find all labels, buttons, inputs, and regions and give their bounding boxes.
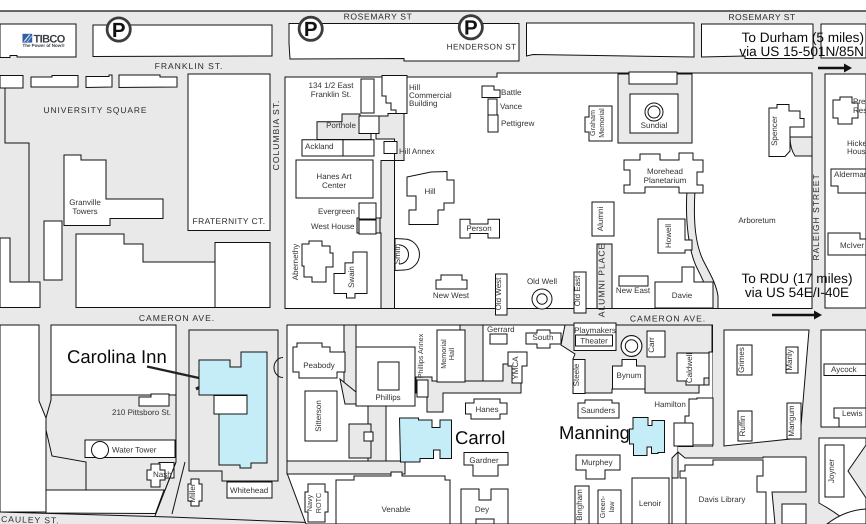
svg-text:West House: West House xyxy=(311,222,355,231)
svg-text:Phillips: Phillips xyxy=(375,393,400,402)
svg-text:Memorial: Memorial xyxy=(597,108,606,138)
svg-text:Planetarium: Planetarium xyxy=(644,176,687,185)
svg-text:To Durham (5 miles): To Durham (5 miles) xyxy=(742,30,864,45)
svg-text:Hill Annex: Hill Annex xyxy=(399,147,435,156)
svg-text:Smith: Smith xyxy=(393,244,402,264)
svg-text:Bynum: Bynum xyxy=(617,371,642,380)
svg-text:FRANKLIN ST.: FRANKLIN ST. xyxy=(155,61,224,71)
svg-text:Aycock: Aycock xyxy=(831,365,858,374)
svg-text:Hall: Hall xyxy=(447,347,456,360)
svg-text:P: P xyxy=(464,17,478,40)
svg-text:Alderman: Alderman xyxy=(834,170,866,179)
svg-text:Howell: Howell xyxy=(664,224,673,248)
svg-text:Building: Building xyxy=(409,99,437,108)
svg-text:Center: Center xyxy=(322,181,346,190)
svg-text:Swain: Swain xyxy=(347,266,356,288)
svg-text:CAMERON AVE.: CAMERON AVE. xyxy=(630,314,706,324)
svg-text:210 Pittsboro St.: 210 Pittsboro St. xyxy=(112,408,171,417)
svg-text:Nash: Nash xyxy=(153,470,172,479)
svg-text:ROSEMARY ST: ROSEMARY ST xyxy=(728,12,795,22)
svg-text:Whitehead: Whitehead xyxy=(230,486,268,495)
svg-text:Pres.: Pres. xyxy=(853,97,866,106)
svg-text:Gerrard: Gerrard xyxy=(487,325,515,334)
svg-text:Granville: Granville xyxy=(69,198,101,207)
svg-text:McIver: McIver xyxy=(840,241,864,250)
svg-text:South: South xyxy=(533,333,554,342)
svg-text:Hanes: Hanes xyxy=(475,405,498,414)
svg-text:Murphey: Murphey xyxy=(581,458,612,467)
svg-text:Res.: Res. xyxy=(853,106,866,115)
svg-text:To RDU (17 miles): To RDU (17 miles) xyxy=(741,271,852,286)
svg-text:UNIVERSITY SQUARE: UNIVERSITY SQUARE xyxy=(44,105,148,115)
svg-text:law: law xyxy=(607,501,616,513)
svg-text:P: P xyxy=(112,19,126,42)
svg-text:Evergreen: Evergreen xyxy=(318,207,355,216)
svg-text:Old Well: Old Well xyxy=(527,277,557,286)
svg-text:HENDERSON ST: HENDERSON ST xyxy=(447,42,517,51)
svg-text:Ruffin: Ruffin xyxy=(738,416,747,437)
svg-text:Arboretum: Arboretum xyxy=(738,216,776,225)
svg-text:Bingham: Bingham xyxy=(575,489,584,521)
svg-text:CAMERON AVE.: CAMERON AVE. xyxy=(139,313,215,323)
svg-text:ROTC: ROTC xyxy=(314,493,323,513)
svg-text:Grimes: Grimes xyxy=(737,347,746,373)
svg-text:New West: New West xyxy=(433,291,470,300)
svg-text:134 1/2 East: 134 1/2 East xyxy=(309,81,355,90)
svg-text:RALEIGH STREET: RALEIGH STREET xyxy=(811,173,821,260)
svg-text:Water Tower: Water Tower xyxy=(112,446,157,455)
svg-text:Phillips Annex: Phillips Annex xyxy=(416,333,425,378)
svg-text:Old West: Old West xyxy=(494,277,503,311)
svg-text:Franklin St.: Franklin St. xyxy=(311,90,351,99)
svg-text:via US 54E/I-40E: via US 54E/I-40E xyxy=(745,285,849,300)
svg-text:ROSEMARY ST: ROSEMARY ST xyxy=(344,12,413,22)
svg-text:Battle: Battle xyxy=(501,88,522,97)
svg-text:Dey: Dey xyxy=(475,505,489,514)
svg-text:Pettigrew: Pettigrew xyxy=(501,119,535,128)
svg-text:Lenoir: Lenoir xyxy=(639,499,662,508)
svg-text:Spencer: Spencer xyxy=(770,116,779,146)
svg-text:Carr: Carr xyxy=(647,337,656,353)
svg-text:Vance: Vance xyxy=(500,102,523,111)
svg-text:Manning: Manning xyxy=(559,422,630,443)
svg-text:Person: Person xyxy=(466,224,491,233)
svg-text:Mangum: Mangum xyxy=(787,405,796,436)
svg-text:House: House xyxy=(847,147,866,156)
svg-text:P: P xyxy=(304,18,318,41)
svg-text:FRATERNITY CT.: FRATERNITY CT. xyxy=(193,216,266,226)
svg-text:via US 15-501N/85N: via US 15-501N/85N xyxy=(739,44,864,59)
svg-text:Theater: Theater xyxy=(580,337,608,346)
svg-text:Peabody: Peabody xyxy=(303,361,335,370)
svg-text:CAULEY ST.: CAULEY ST. xyxy=(1,514,60,524)
svg-text:Davis Library: Davis Library xyxy=(699,495,746,504)
svg-text:ALUMNI PLACE: ALUMNI PLACE xyxy=(597,243,607,317)
svg-text:The Power of Now®: The Power of Now® xyxy=(23,43,66,48)
svg-text:COLUMBIA ST.: COLUMBIA ST. xyxy=(271,100,281,171)
svg-text:Hanes Art: Hanes Art xyxy=(316,172,352,181)
svg-text:Alumni: Alumni xyxy=(596,207,605,232)
svg-text:Old East: Old East xyxy=(573,275,582,306)
svg-text:Joyner: Joyner xyxy=(827,459,836,483)
svg-text:New East: New East xyxy=(616,286,651,295)
svg-text:Carolina Inn: Carolina Inn xyxy=(67,346,167,367)
svg-text:Porthole: Porthole xyxy=(326,121,356,130)
svg-text:Davie: Davie xyxy=(672,291,693,300)
svg-text:Playmakers: Playmakers xyxy=(574,326,616,335)
svg-text:Carrol: Carrol xyxy=(455,427,505,448)
svg-text:YMCA: YMCA xyxy=(511,356,520,380)
svg-text:Abernethy: Abernethy xyxy=(291,244,300,280)
svg-text:Hill: Hill xyxy=(424,187,435,196)
svg-text:Lewis: Lewis xyxy=(842,409,862,418)
svg-text:Towers: Towers xyxy=(72,207,97,216)
svg-text:Hamilton: Hamilton xyxy=(654,400,686,409)
svg-text:Steele: Steele xyxy=(572,363,581,386)
svg-text:Ackland: Ackland xyxy=(305,142,333,151)
svg-text:Manly: Manly xyxy=(785,349,794,370)
svg-text:Caldwell: Caldwell xyxy=(685,353,694,383)
svg-text:Sitterson: Sitterson xyxy=(314,400,323,432)
svg-text:Miller: Miller xyxy=(188,483,197,502)
svg-text:Navy: Navy xyxy=(305,494,314,511)
svg-text:Saunders: Saunders xyxy=(581,406,615,415)
svg-text:Green-: Green- xyxy=(598,495,607,518)
svg-text:Sundial: Sundial xyxy=(641,121,668,130)
svg-text:Venable: Venable xyxy=(382,505,411,514)
svg-text:Gardner: Gardner xyxy=(469,456,499,465)
svg-text:Graham: Graham xyxy=(588,110,597,136)
svg-text:Morehead: Morehead xyxy=(647,167,683,176)
